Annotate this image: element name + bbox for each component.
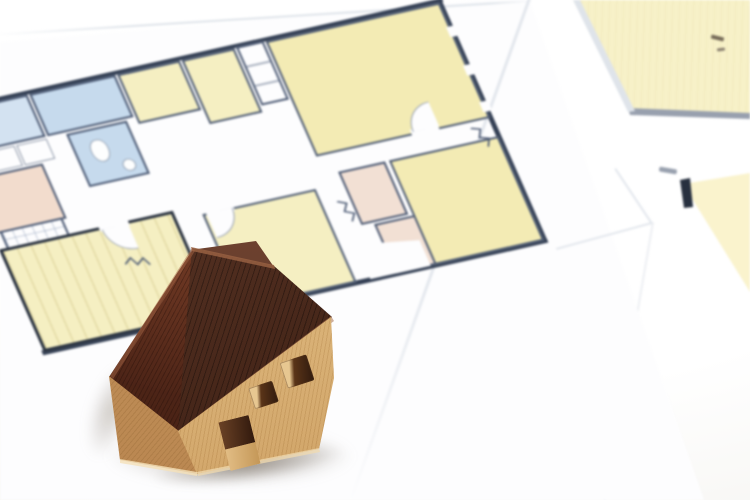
roof-eave-highlight (0, 0, 750, 500)
house-front-wall (0, 0, 750, 500)
photo-scene (0, 0, 750, 500)
roof-gable-face (0, 0, 750, 500)
house-front-wall-grain (0, 0, 750, 500)
roof-back-slope (0, 0, 750, 500)
roof-front-texture (0, 0, 750, 500)
house-bottom-edge-highlight-left (0, 0, 750, 500)
house-left-wall-grain (0, 0, 750, 500)
roof-front-slope (0, 0, 750, 500)
roof-left-edge-highlight (0, 0, 750, 500)
roof-ridge-highlight (0, 0, 750, 500)
house-left-wall (0, 0, 750, 500)
house-bottom-edge-highlight-front (0, 0, 750, 500)
roof-gable-texture (0, 0, 750, 500)
house-model (0, 0, 750, 500)
